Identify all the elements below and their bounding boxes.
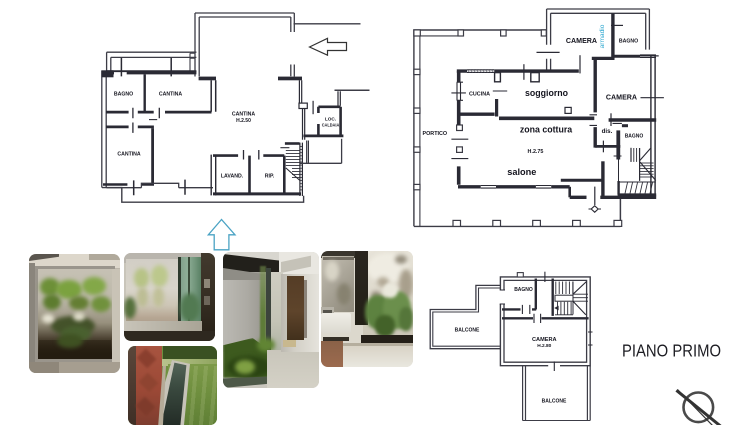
svg-text:CANTINA: CANTINA	[232, 111, 256, 117]
svg-text:LAVAND.: LAVAND.	[221, 173, 244, 179]
svg-text:PIANO PRIMO: PIANO PRIMO	[622, 341, 721, 361]
svg-text:CAMERA: CAMERA	[566, 37, 597, 45]
svg-text:BALCONE: BALCONE	[542, 399, 567, 405]
svg-text:zona cottura: zona cottura	[520, 125, 572, 135]
svg-text:BAGNO: BAGNO	[514, 287, 533, 293]
svg-text:BAGNO: BAGNO	[625, 133, 644, 139]
svg-text:H.2.80: H.2.80	[537, 343, 551, 349]
svg-text:CUCINA: CUCINA	[469, 92, 490, 98]
svg-text:H.2.75: H.2.75	[528, 149, 544, 155]
svg-text:salone: salone	[507, 167, 536, 177]
svg-text:soggiorno: soggiorno	[525, 88, 569, 98]
svg-text:H.2.50: H.2.50	[236, 118, 251, 124]
svg-text:BALCONE: BALCONE	[455, 328, 480, 334]
svg-text:armadio: armadio	[599, 24, 606, 48]
svg-text:CAMERA: CAMERA	[606, 94, 637, 102]
svg-text:LOC.: LOC.	[325, 116, 336, 121]
svg-text:CAMERA: CAMERA	[532, 337, 557, 343]
svg-text:RIP.: RIP.	[265, 173, 275, 179]
svg-text:PORTICO: PORTICO	[423, 131, 448, 137]
svg-text:CANTINA: CANTINA	[159, 91, 183, 97]
svg-text:dis.: dis.	[602, 128, 613, 135]
svg-text:CALDAIA: CALDAIA	[322, 123, 340, 128]
svg-text:CANTINA: CANTINA	[117, 152, 141, 158]
svg-text:BAGNO: BAGNO	[619, 39, 638, 45]
svg-text:BAGNO: BAGNO	[114, 91, 133, 97]
